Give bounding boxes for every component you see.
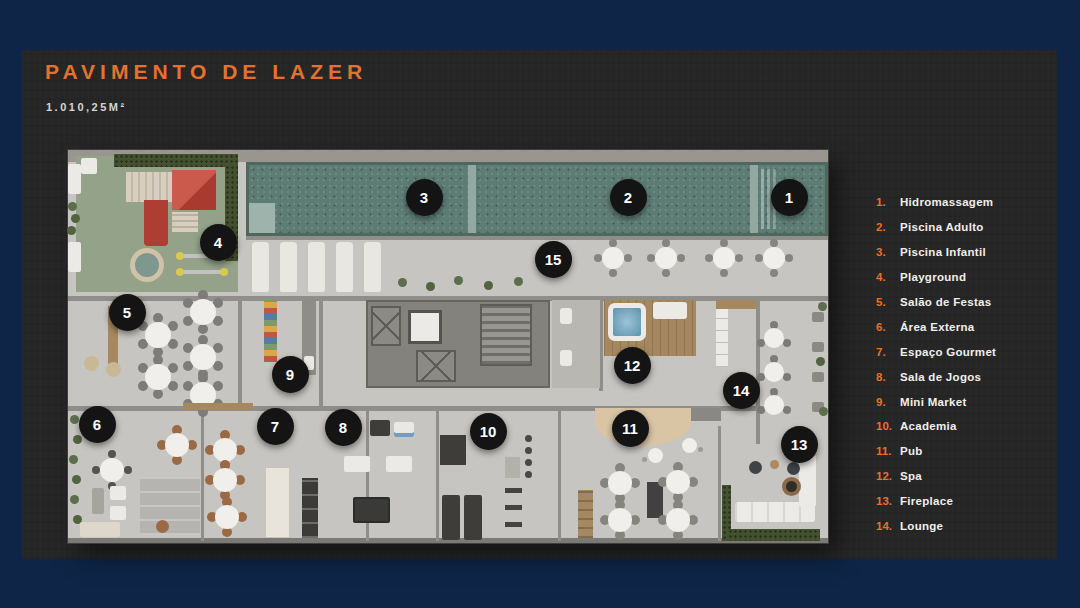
fireplace-sofa (799, 455, 816, 507)
table (713, 247, 735, 269)
gourmet-counter (265, 467, 290, 538)
outdoor-sofa (80, 522, 120, 537)
gourmet-table (213, 438, 237, 462)
shaft (371, 306, 401, 346)
elevator (408, 310, 442, 344)
balcony-chairs (812, 312, 824, 322)
shaft (416, 350, 456, 382)
side-table (770, 460, 779, 469)
pub-table (666, 470, 690, 494)
dumbbell-rack (505, 457, 520, 478)
legend-label: Sala de Jogos (900, 371, 981, 383)
legend-label: Piscina Adulto (900, 221, 984, 233)
outdoor-table (100, 458, 124, 482)
plan-marker-2: 2 (610, 179, 647, 216)
kettlebells (525, 435, 532, 442)
pub-table (608, 471, 632, 495)
plan-marker-6: 6 (79, 406, 116, 443)
plan-marker-1: 1 (771, 179, 808, 216)
banquet-table (145, 364, 171, 390)
banquet-table (145, 322, 171, 348)
treadmill (464, 495, 482, 540)
game-table (344, 456, 370, 472)
seesaw-seat (220, 268, 228, 276)
legend-item: 12.Spa (876, 464, 1046, 489)
legend-item: 1.Hidromassagem (876, 190, 1046, 215)
plan-marker-13: 13 (781, 426, 818, 463)
stool (156, 520, 169, 533)
legend-number: 3. (876, 246, 900, 258)
wall (238, 296, 242, 411)
plan-marker-9: 9 (272, 356, 309, 393)
fixture (560, 308, 572, 324)
market-shelf (264, 300, 277, 362)
legend-label: Pub (900, 445, 923, 457)
wall (756, 296, 760, 444)
wall (558, 408, 561, 541)
legend-item: 13.Fireplace (876, 489, 1046, 514)
legend-item: 5.Salão de Festas (876, 290, 1046, 315)
legend-label: Mini Market (900, 396, 967, 408)
plan-marker-10: 10 (470, 413, 507, 450)
legend: 1.Hidromassagem2.Piscina Adulto3.Piscina… (876, 190, 1046, 538)
slide (144, 200, 168, 246)
pub-hightop (682, 438, 697, 453)
armchair (110, 486, 126, 500)
pool-steps (249, 203, 275, 233)
seesaw-seat (176, 252, 184, 260)
pub-table (608, 508, 632, 532)
fire-pit (782, 477, 801, 496)
hedge (728, 529, 820, 541)
wall (436, 408, 439, 541)
pub-hightop (648, 448, 663, 463)
legend-number: 8. (876, 371, 900, 383)
plan-marker-15: 15 (535, 241, 572, 278)
banquet-table (190, 344, 216, 370)
legend-number: 7. (876, 346, 900, 358)
pouf (749, 461, 762, 474)
wicker-chair (106, 362, 121, 377)
legend-number: 14. (876, 520, 900, 532)
kitchen-appliances (716, 309, 728, 367)
plant (818, 302, 827, 311)
pool-divider (750, 165, 758, 233)
plan-marker-14: 14 (723, 372, 760, 409)
legend-number: 10. (876, 420, 900, 432)
legend-item: 9.Mini Market (876, 389, 1046, 414)
air-hockey (394, 422, 414, 437)
legend-item: 3.Piscina Infantil (876, 240, 1046, 265)
floor-plan: 123456789101112131415 (68, 150, 828, 543)
pub-piano (647, 482, 663, 518)
seesaw (180, 270, 224, 274)
fixture (560, 350, 572, 366)
legend-label: Piscina Infantil (900, 246, 986, 258)
plan-marker-12: 12 (614, 347, 651, 384)
plan-marker-3: 3 (406, 179, 443, 216)
legend-item: 7.Espaço Gourmet (876, 339, 1046, 364)
legend-item: 8.Sala de Jogos (876, 364, 1046, 389)
hot-tub (608, 303, 646, 341)
legend-label: Salão de Festas (900, 296, 991, 308)
trampoline (130, 248, 164, 282)
legend-label: Hidromassagem (900, 196, 993, 208)
legend-label: Espaço Gourmet (900, 346, 996, 358)
lounge-table (764, 395, 784, 415)
table (655, 247, 677, 269)
gym-machine (440, 435, 466, 465)
banquet-table (190, 299, 216, 325)
lounge-table (764, 328, 784, 348)
sun-loungers (252, 242, 269, 292)
legend-item: 6.Área Externa (876, 314, 1046, 339)
playhouse-roof (172, 170, 216, 210)
kitchen-counter (716, 300, 756, 309)
treadmill (442, 495, 460, 540)
seesaw-seat (176, 268, 184, 276)
legend-label: Playground (900, 271, 966, 283)
legend-number: 5. (876, 296, 900, 308)
pool-divider (468, 165, 476, 233)
armchair (110, 506, 126, 520)
legend-number: 6. (876, 321, 900, 333)
wall (718, 426, 721, 541)
table (602, 247, 624, 269)
legend-item: 2.Piscina Adulto (876, 215, 1046, 240)
pool-ladder (761, 169, 764, 229)
plan-marker-4: 4 (200, 224, 237, 261)
gourmet-table (215, 505, 239, 529)
gourmet-cabinets (302, 478, 318, 538)
lounge-chair (92, 488, 104, 514)
pub-table (666, 508, 690, 532)
playhouse-steps (172, 212, 198, 232)
legend-item: 4.Playground (876, 265, 1046, 290)
table (763, 247, 785, 269)
stairs (480, 304, 532, 366)
legend-label: Área Externa (900, 321, 975, 333)
legend-item: 10.Academia (876, 414, 1046, 439)
pool-table (353, 497, 390, 523)
pool-edge (246, 236, 828, 240)
gourmet-sofa (140, 477, 200, 535)
legend-number: 11. (876, 445, 900, 457)
plan-marker-8: 8 (325, 409, 362, 446)
legend-number: 13. (876, 495, 900, 507)
hedge (114, 154, 238, 167)
legend-number: 1. (876, 196, 900, 208)
sofa (68, 242, 81, 272)
benches (505, 488, 522, 493)
wall (201, 408, 204, 541)
legend-number: 4. (876, 271, 900, 283)
game-console (370, 420, 390, 436)
massage-bed (653, 302, 687, 319)
plan-marker-5: 5 (109, 294, 146, 331)
pool-area (246, 162, 828, 236)
area-value: 1.010,25M² (46, 101, 127, 113)
game-table (386, 456, 412, 472)
pouf (787, 462, 800, 475)
legend-label: Lounge (900, 520, 943, 532)
planters (398, 278, 407, 287)
legend-item: 14.Lounge (876, 514, 1046, 539)
wall (319, 296, 323, 411)
wicker-chair (84, 356, 99, 371)
pub-shelf (578, 490, 593, 538)
legend-label: Spa (900, 470, 922, 482)
plant (68, 202, 77, 211)
gourmet-header (183, 403, 253, 410)
gourmet-table (165, 433, 189, 457)
gourmet-table (213, 468, 237, 492)
legend-label: Fireplace (900, 495, 953, 507)
legend-number: 12. (876, 470, 900, 482)
garden-strip (70, 415, 79, 424)
legend-label: Academia (900, 420, 957, 432)
sofa (68, 164, 81, 194)
page-title: PAVIMENTO DE LAZER (45, 60, 367, 84)
armchair (81, 158, 97, 174)
legend-number: 2. (876, 221, 900, 233)
legend-item: 11.Pub (876, 439, 1046, 464)
legend-number: 9. (876, 396, 900, 408)
plan-marker-11: 11 (612, 410, 649, 447)
plan-marker-7: 7 (257, 408, 294, 445)
lounge-table (764, 362, 784, 382)
